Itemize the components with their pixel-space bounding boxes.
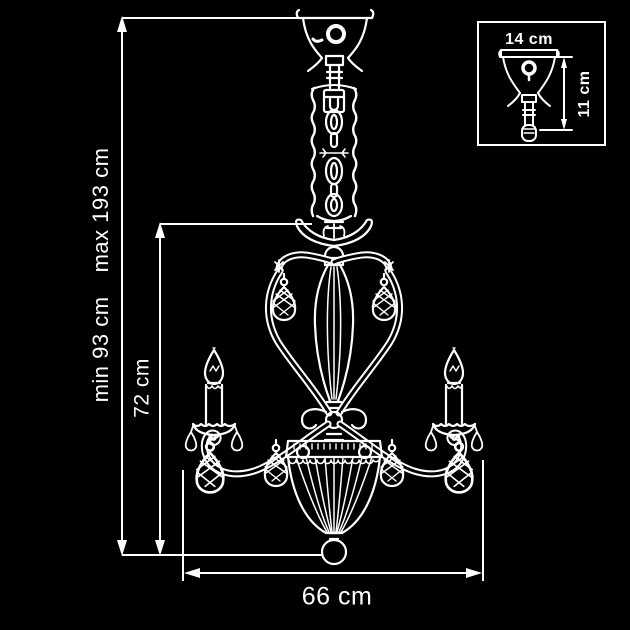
chandelier-drawing — [186, 10, 483, 564]
inset-dimension-lines — [501, 50, 572, 130]
upper-scroll-left — [268, 255, 334, 413]
candle-right — [426, 348, 483, 451]
inset-canopy-height-label: 11 cm — [577, 71, 593, 118]
chain-and-sleeve — [312, 85, 357, 228]
ceiling-canopy — [297, 10, 374, 88]
max-height-label: max 193 cm — [88, 148, 113, 273]
body-height-label: 72 cm — [132, 358, 153, 418]
inset-canopy-width-label: 14 cm — [505, 32, 553, 48]
upper-scroll-right — [334, 255, 400, 413]
dimension-diagram: min 93 cmmax 193 cm 72 cm 66 cm 14 cm 11… — [0, 0, 630, 630]
inset-canopy-drawing — [499, 51, 559, 141]
min-height-label: min 93 cm — [88, 296, 113, 402]
candle-left — [186, 348, 243, 451]
width-label: 66 cm — [302, 585, 373, 610]
ball-finial — [322, 540, 346, 564]
height-range-label: min 93 cmmax 193 cm — [90, 148, 112, 403]
center-column — [315, 258, 353, 408]
center-bowl — [286, 441, 382, 564]
dimension-arrowheads — [117, 16, 482, 578]
dimension-lines — [122, 18, 483, 581]
